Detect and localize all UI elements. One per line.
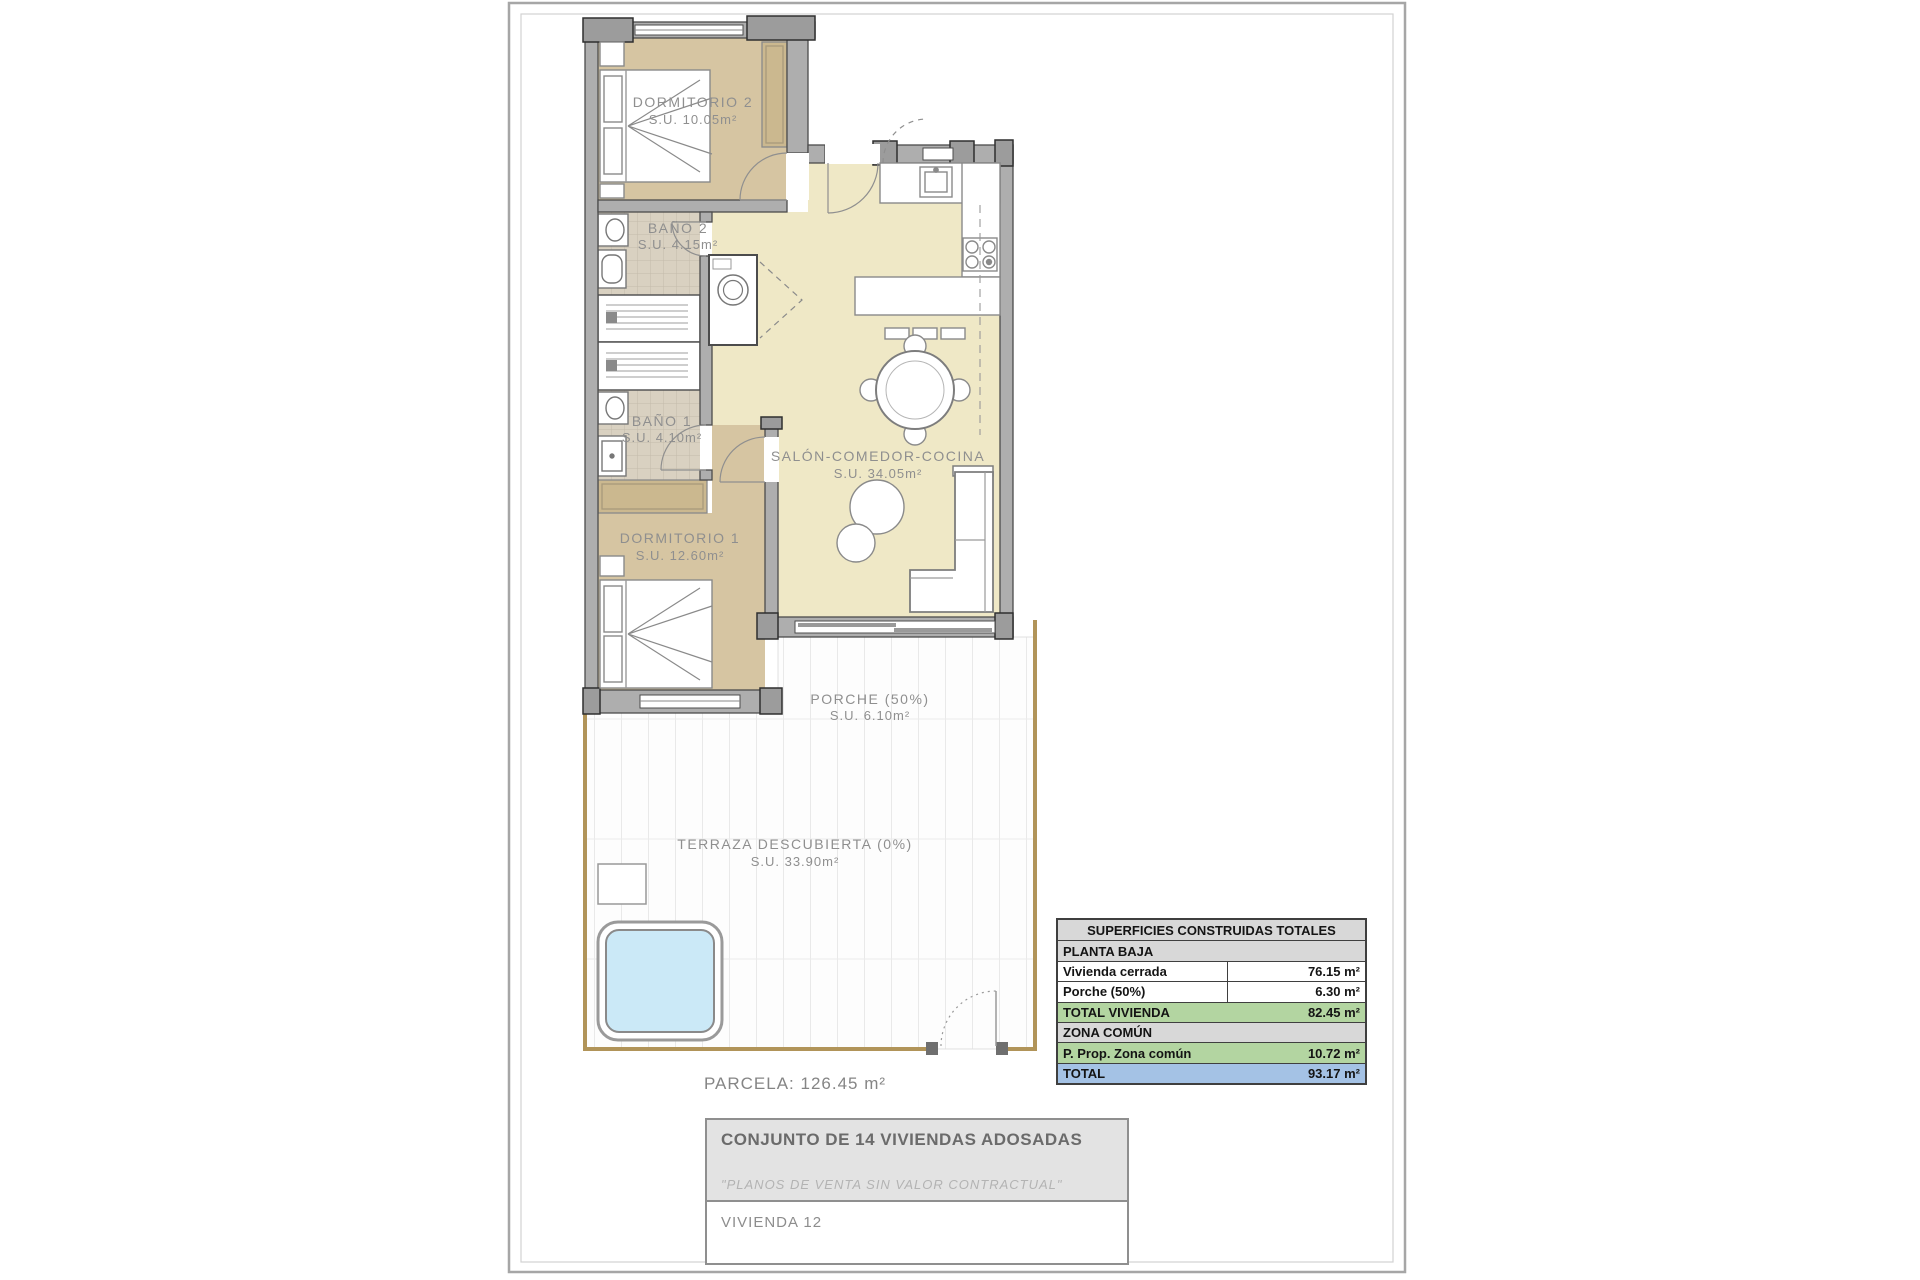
terrace-storage-box [598,864,646,904]
table-cell-value: 6.30 m² [1227,982,1365,1001]
table-cell-value: 10.72 m² [1227,1046,1365,1061]
table-row: Porche (50%) 6.30 m² [1058,981,1365,1001]
table-row: PLANTA BAJA [1058,940,1365,960]
shower-drain [606,312,617,323]
room-area-dormitorio2: S.U. 10.05m² [649,112,738,127]
drawing-sheet: DORMITORIO 2 S.U. 10.05m² BAÑO 2 S.U. 4.… [0,0,1920,1280]
disclaimer-text: "PLANOS DE VENTA SIN VALOR CONTRACTUAL" [721,1177,1115,1192]
room-label-bano2: BAÑO 2 [648,220,708,236]
table-section-label: ZONA COMÚN [1058,1025,1365,1040]
table-cell-label: TOTAL [1058,1066,1227,1081]
table-row: ZONA COMÚN [1058,1022,1365,1042]
room-area-bano1: S.U. 4.10m² [622,430,702,445]
table-cell-value: 76.15 m² [1227,962,1365,981]
pool [598,922,722,1040]
table-cell-value: 82.45 m² [1227,1005,1365,1020]
table-section-label: PLANTA BAJA [1058,944,1365,959]
room-label-terraza: TERRAZA DESCUBIERTA (0%) [677,836,912,852]
title-block: CONJUNTO DE 14 VIVIENDAS ADOSADAS "PLANO… [705,1118,1129,1265]
table-row: TOTAL 93.17 m² [1058,1063,1365,1083]
table-cell-label: Porche (50%) [1058,984,1227,999]
room-area-porche: S.U. 6.10m² [830,708,910,723]
project-title: CONJUNTO DE 14 VIVIENDAS ADOSADAS [721,1130,1115,1150]
shower-stalls [598,295,700,390]
floor-plan-svg: DORMITORIO 2 S.U. 10.05m² BAÑO 2 S.U. 4.… [0,0,1920,1280]
table-row: TOTAL VIVIENDA 82.45 m² [1058,1002,1365,1022]
room-area-terraza: S.U. 33.90m² [751,854,840,869]
parcela-label: PARCELA: 126.45 m² [704,1074,886,1093]
shower-drain [606,360,617,371]
table-cell-value: 93.17 m² [1227,1066,1365,1081]
table-row: Vivienda cerrada 76.15 m² [1058,961,1365,981]
table-cell-label: P. Prop. Zona común [1058,1046,1227,1061]
room-label-salon: SALÓN-COMEDOR-COCINA [771,448,985,464]
surfaces-table: SUPERFICIES CONSTRUIDAS TOTALES PLANTA B… [1056,918,1367,1085]
title-block-header: CONJUNTO DE 14 VIVIENDAS ADOSADAS "PLANO… [707,1120,1127,1202]
room-label-dormitorio2: DORMITORIO 2 [633,94,753,110]
table-row: SUPERFICIES CONSTRUIDAS TOTALES [1058,920,1365,940]
room-label-dormitorio1: DORMITORIO 1 [620,530,740,546]
table-header: SUPERFICIES CONSTRUIDAS TOTALES [1087,923,1336,938]
title-block-unit: VIVIENDA 12 [707,1202,1127,1263]
room-label-bano1: BAÑO 1 [632,413,692,429]
room-area-dormitorio1: S.U. 12.60m² [636,548,725,563]
room-area-bano2: S.U. 4.15m² [638,237,718,252]
table-cell-label: TOTAL VIVIENDA [1058,1005,1227,1020]
unit-label: VIVIENDA 12 [721,1214,1113,1231]
table-cell-label: Vivienda cerrada [1058,964,1227,979]
room-label-porche: PORCHE (50%) [810,691,929,707]
table-row: P. Prop. Zona común 10.72 m² [1058,1042,1365,1062]
room-area-salon: S.U. 34.05m² [834,466,923,481]
kitchen-peninsula [855,277,1000,315]
